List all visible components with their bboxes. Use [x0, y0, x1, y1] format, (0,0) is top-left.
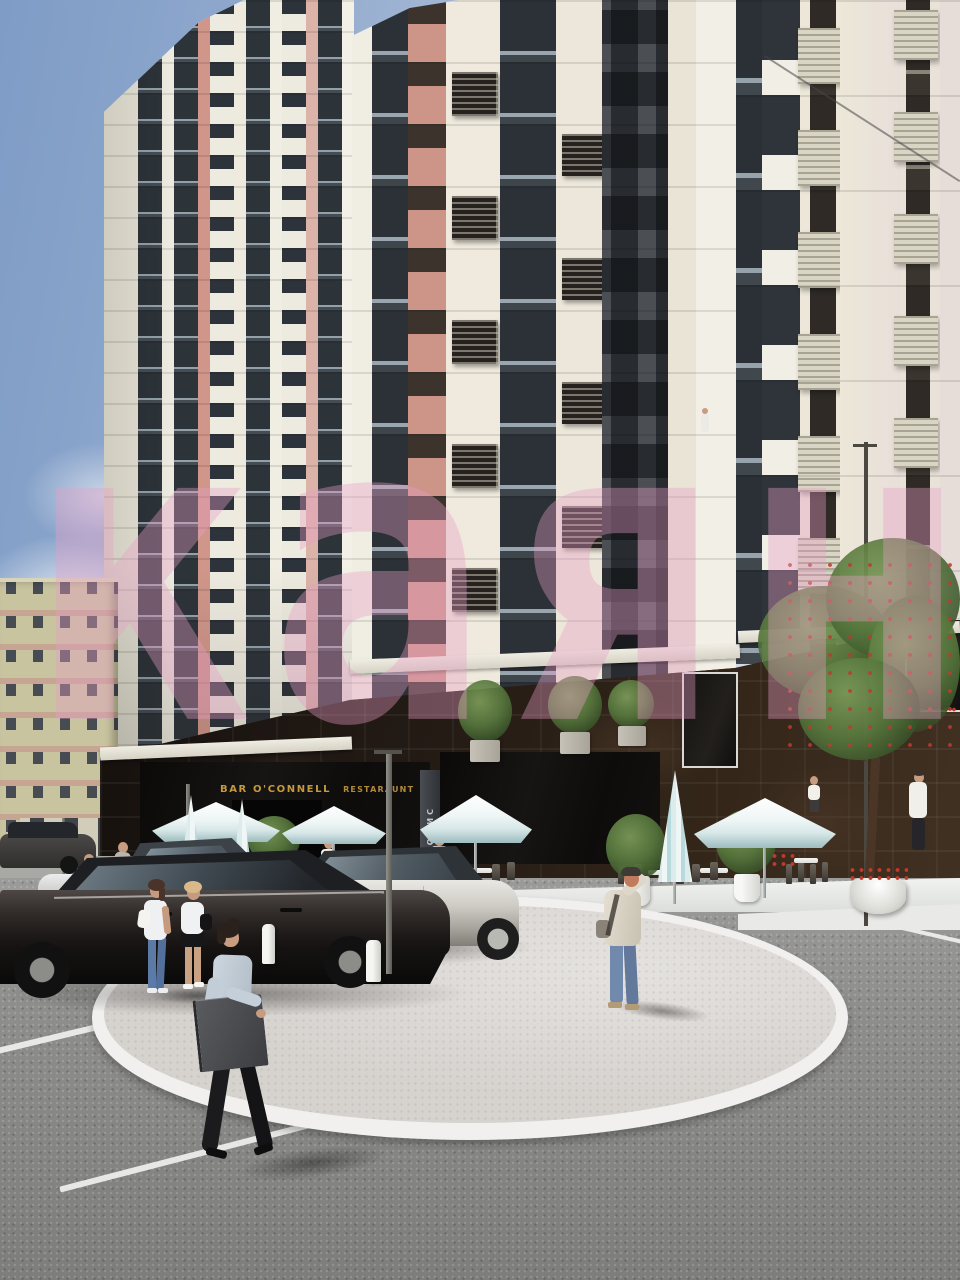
- wf-heel-back: [253, 1142, 274, 1156]
- balcony-lattice: [452, 444, 498, 488]
- lamp-post-arm: [374, 750, 402, 754]
- louver-balcony: [798, 232, 846, 288]
- balcony-person-body: [701, 414, 709, 432]
- balcony-person: [699, 408, 711, 436]
- balcony-lattice: [452, 196, 498, 240]
- louver-balcony: [894, 418, 938, 468]
- terrace-tree-foliage: [548, 676, 602, 734]
- pedestrian-woman-folder: [168, 925, 278, 1197]
- cafe-planter: [734, 874, 760, 902]
- bar-stool: [810, 864, 816, 884]
- wf-heel-front: [205, 1147, 227, 1160]
- pedestrian-legs: [810, 800, 819, 812]
- cafe-chair: [692, 864, 700, 882]
- woman1-leg: [156, 936, 167, 990]
- bollard: [366, 940, 381, 982]
- flower-planter-small: [770, 852, 800, 867]
- balcony-lattice: [562, 382, 604, 424]
- pedestrian-torso: [808, 785, 820, 800]
- louver-balcony: [894, 316, 938, 366]
- pedestrian-coat: [909, 782, 927, 818]
- podium-flower-ledge: [918, 706, 960, 714]
- wf-hair-side: [217, 929, 226, 944]
- dark-sedan-handle: [280, 908, 302, 912]
- lamp-post-front: [386, 752, 392, 974]
- terrace-tree-foliage: [458, 680, 512, 742]
- balcony-lattice: [452, 72, 498, 116]
- man-cap: [621, 867, 641, 876]
- man-shoe: [625, 1004, 639, 1010]
- woman2-hair: [184, 881, 202, 893]
- tower-middle: [352, 0, 736, 710]
- dark-sedan-wheel-rear: [14, 942, 70, 998]
- balcony-lattice: [452, 320, 498, 364]
- pedestrian-waiter-right: [904, 772, 936, 858]
- woman1-leg: [148, 936, 156, 990]
- suv-wheel-front: [477, 918, 519, 960]
- lamp-post-tall: [864, 442, 868, 926]
- architectural-render: BAR O'CONNELL RESTARAUNT ОФИС: [0, 0, 960, 1280]
- bar-sign-name: BAR O'CONNELL: [220, 784, 331, 795]
- man-leg: [610, 938, 623, 1004]
- light-wall: [840, 0, 900, 664]
- balcony-glazing-column: [736, 0, 762, 664]
- wall-column: [556, 0, 602, 710]
- corner-band: [352, 0, 372, 710]
- balcony-lattice: [562, 506, 604, 548]
- terrace-tree-planter: [560, 732, 590, 754]
- umbrella-pole: [763, 844, 766, 898]
- pedestrian-terrace: [804, 776, 826, 812]
- balcony-lattice: [562, 134, 604, 176]
- louver-balcony: [798, 436, 846, 492]
- louver-balcony: [894, 10, 938, 60]
- terrace-tree-foliage: [608, 680, 654, 728]
- louver-balcony: [798, 130, 846, 186]
- terrace-tree-planter: [618, 726, 646, 746]
- cafe-chair: [710, 862, 718, 880]
- glazed-band: [762, 0, 800, 664]
- terrace-tree-planter: [470, 740, 500, 762]
- woman1-shoe: [147, 988, 157, 993]
- salmon-brick-column: [408, 0, 446, 710]
- corner-band: [696, 0, 736, 710]
- bar-stool: [822, 862, 828, 882]
- pedestrian-man-plaza: [584, 864, 664, 1028]
- balcony-lattice: [562, 258, 604, 300]
- tower-right: [736, 0, 960, 664]
- woman1-shoe: [158, 988, 168, 993]
- pedestrian-hair: [913, 770, 925, 776]
- bar-stool: [786, 864, 792, 884]
- wf-hand-right: [256, 1009, 266, 1018]
- man-leg: [623, 938, 639, 1007]
- dark-brick-section: [602, 0, 668, 710]
- wf-hair-bun: [228, 918, 240, 929]
- pedestrian-legs: [912, 818, 925, 850]
- balcony-lattice: [452, 568, 498, 612]
- storefront-framed-window: [682, 672, 738, 768]
- louver-balcony: [894, 214, 938, 264]
- woman1-ponytail: [159, 887, 165, 901]
- balcony-glazing-column: [372, 0, 408, 710]
- louver-balcony: [798, 28, 846, 84]
- lamp-post-arm: [853, 444, 877, 447]
- louver-balcony: [798, 334, 846, 390]
- car-background-window: [8, 822, 78, 838]
- pedestrian-head: [810, 776, 818, 785]
- bar-sign-type: RESTARAUNT: [343, 785, 414, 794]
- man-shoe: [608, 1002, 622, 1008]
- edge-wall: [940, 0, 960, 664]
- wall-column: [668, 0, 696, 710]
- balcony-glazing-column: [500, 0, 556, 710]
- louver-balcony: [798, 538, 846, 594]
